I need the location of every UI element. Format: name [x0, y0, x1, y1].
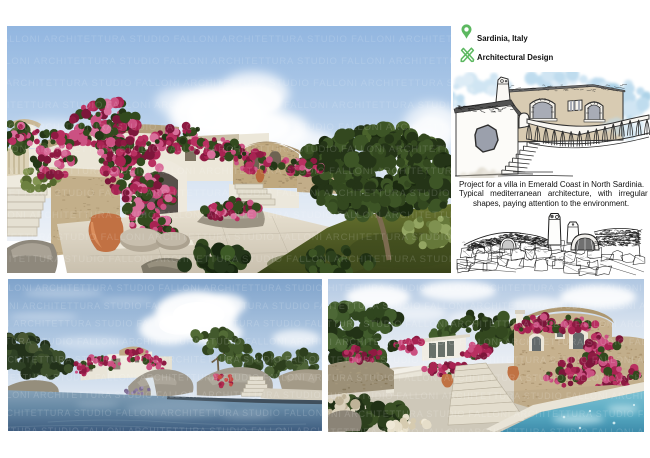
svg-text:FALLONI ARCHITETTURA STUDIO FA: FALLONI ARCHITETTURA STUDIO FALLONI ARCH…	[328, 427, 644, 432]
svg-text:FALLONI ARCHITETTURA STUDIO FA: FALLONI ARCHITETTURA STUDIO FALLONI ARCH…	[7, 426, 323, 431]
svg-text:FALLONI ARCHITETTURA STUDIO FA: FALLONI ARCHITETTURA STUDIO FALLONI ARCH…	[7, 337, 323, 347]
svg-text:FALLONI ARCHITETTURA STUDIO FA: FALLONI ARCHITETTURA STUDIO FALLONI ARCH…	[328, 301, 644, 311]
svg-text:FALLONI ARCHITETTURA STUDIO FA: FALLONI ARCHITETTURA STUDIO FALLONI ARCH…	[7, 372, 323, 382]
svg-text:FALLONI ARCHITETTURA STUDIO FA: FALLONI ARCHITETTURA STUDIO FALLONI ARCH…	[7, 56, 451, 67]
svg-text:FALLONI ARCHITETTURA STUDIO FA: FALLONI ARCHITETTURA STUDIO FALLONI ARCH…	[328, 355, 644, 365]
svg-text:FALLONI ARCHITETTURA STUDIO FA: FALLONI ARCHITETTURA STUDIO FALLONI ARCH…	[7, 78, 451, 89]
svg-text:FALLONI ARCHITETTURA STUDIO FA: FALLONI ARCHITETTURA STUDIO FALLONI ARCH…	[7, 188, 450, 199]
svg-text:FALLONI ARCHITETTURA STUDIO FA: FALLONI ARCHITETTURA STUDIO FALLONI ARCH…	[7, 390, 323, 400]
svg-text:FALLONI ARCHITETTURA STUDIO FA: FALLONI ARCHITETTURA STUDIO FALLONI ARCH…	[7, 319, 323, 329]
svg-text:FALLONI ARCHITETTURA STUDIO FA: FALLONI ARCHITETTURA STUDIO FALLONI ARCH…	[7, 210, 451, 221]
svg-text:FALLONI ARCHITETTURA STUDIO FA: FALLONI ARCHITETTURA STUDIO FALLONI ARCH…	[328, 337, 644, 347]
svg-text:FALLONI ARCHITETTURA STUDIO FA: FALLONI ARCHITETTURA STUDIO FALLONI ARCH…	[7, 283, 323, 293]
svg-text:FALLONI ARCHITETTURA STUDIO FA: FALLONI ARCHITETTURA STUDIO FALLONI ARCH…	[7, 232, 451, 243]
svg-text:FALLONI ARCHITETTURA STUDIO FA: FALLONI ARCHITETTURA STUDIO FALLONI ARCH…	[328, 373, 644, 383]
svg-text:FALLONI ARCHITETTURA STUDIO FA: FALLONI ARCHITETTURA STUDIO FALLONI ARCH…	[328, 283, 644, 293]
svg-text:FALLONI ARCHITETTURA STUDIO FA: FALLONI ARCHITETTURA STUDIO FALLONI ARCH…	[7, 122, 451, 133]
svg-text:FALLONI ARCHITETTURA STUDIO FA: FALLONI ARCHITETTURA STUDIO FALLONI ARCH…	[7, 408, 323, 418]
svg-text:FALLONI ARCHITETTURA STUDIO FA: FALLONI ARCHITETTURA STUDIO FALLONI ARCH…	[328, 391, 644, 401]
svg-text:FALLONI ARCHITETTURA STUDIO FA: FALLONI ARCHITETTURA STUDIO FALLONI ARCH…	[7, 144, 451, 155]
svg-text:FALLONI ARCHITETTURA STUDIO FA: FALLONI ARCHITETTURA STUDIO FALLONI ARCH…	[328, 319, 644, 329]
svg-text:FALLONI ARCHITETTURA STUDIO FA: FALLONI ARCHITETTURA STUDIO FALLONI ARCH…	[328, 409, 644, 419]
svg-text:FALLONI ARCHITETTURA STUDIO FA: FALLONI ARCHITETTURA STUDIO FALLONI ARCH…	[7, 34, 451, 45]
svg-text:FALLONI ARCHITETTURA STUDIO FA: FALLONI ARCHITETTURA STUDIO FALLONI ARCH…	[7, 166, 451, 177]
svg-text:FALLONI ARCHITETTURA STUDIO FA: FALLONI ARCHITETTURA STUDIO FALLONI ARCH…	[7, 100, 451, 111]
svg-text:FALLONI ARCHITETTURA STUDIO FA: FALLONI ARCHITETTURA STUDIO FALLONI ARCH…	[7, 354, 323, 364]
svg-text:FALLONI ARCHITETTURA STUDIO FA: FALLONI ARCHITETTURA STUDIO FALLONI ARCH…	[7, 254, 451, 265]
svg-text:FALLONI ARCHITETTURA STUDIO FA: FALLONI ARCHITETTURA STUDIO FALLONI ARCH…	[7, 301, 323, 311]
